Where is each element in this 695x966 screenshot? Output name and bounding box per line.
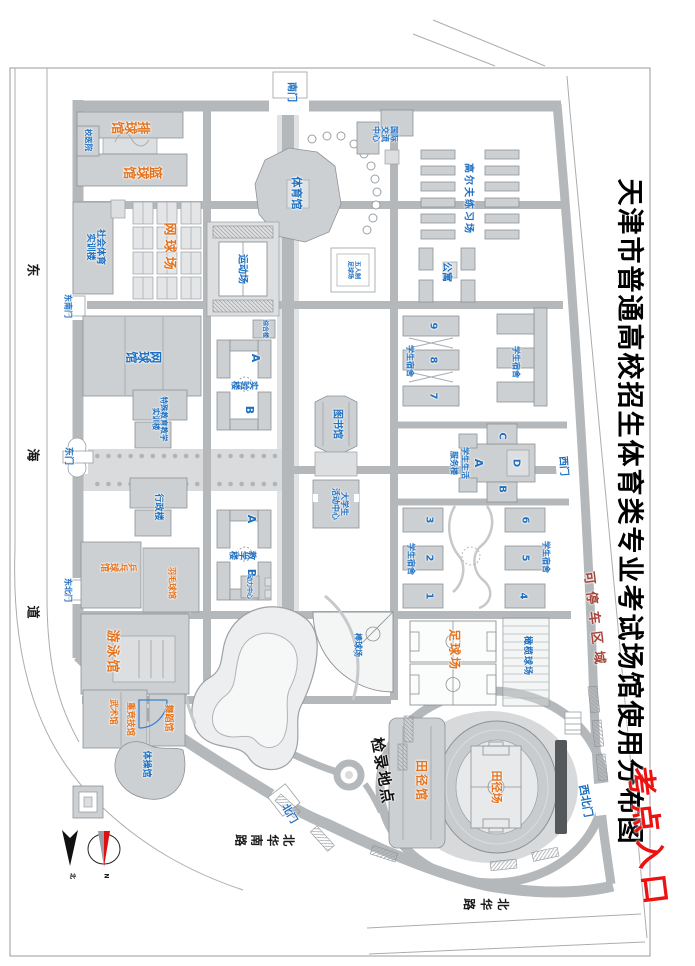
bld-complex: 综合楼: [261, 320, 268, 338]
dorm-7: 7: [427, 393, 438, 400]
dorm-3: 3: [423, 517, 434, 524]
gate-northwest: 西北门: [576, 784, 594, 819]
venue-swimming: 游泳馆: [104, 629, 119, 674]
dorm-1: 1: [423, 593, 434, 600]
bld-intl-exchange: 国际交流中心: [371, 126, 398, 142]
bld-lab-a: A: [249, 354, 261, 363]
bld-baseball: 棒球场: [353, 633, 362, 657]
bld-social-sports-training: 社会体育实训楼: [85, 229, 105, 265]
road-donghai-char-2: 海: [24, 448, 39, 461]
venue-athletics-hall: 田径馆: [414, 760, 427, 802]
dorm-nw-label: 学生宿舍: [511, 346, 520, 378]
venue-heavy-athletics: 重竞技馆: [124, 702, 134, 736]
campus-map-stage: 南门西门西北门北门东门东南门东北门排球馆篮球馆网球场乒乓球馆羽毛球馆游泳馆武术馆…: [0, 0, 695, 966]
bld-special-edu: 特殊教育教学实训楼: [151, 397, 168, 442]
svc-c: C: [496, 432, 507, 439]
dorm-789-label: 学生宿舍: [405, 345, 414, 377]
map-title: 天津市普通高校招生体育类专业考试场馆使用分布图: [613, 179, 652, 846]
svc-label-2: 服务楼: [449, 451, 458, 475]
compass-north-letter: 北: [68, 873, 75, 879]
venue-table-tennis: 乒乓球馆: [101, 561, 137, 571]
dorm-9: 9: [427, 323, 438, 330]
venue-dance: 舞蹈馆: [163, 704, 173, 731]
map-labels: 南门西门西北门北门东门东南门东北门排球馆篮球馆网球场乒乓球馆羽毛球馆游泳馆武术馆…: [0, 0, 695, 966]
bld-library: 图书馆: [331, 409, 342, 439]
venue-tennis-courts: 网球场: [161, 222, 176, 273]
dorm-4: 4: [517, 593, 528, 600]
bld-golf-range: 高尔夫练习场: [462, 163, 473, 235]
campus-map-viewport: 南门西门西北门北门东门东南门东北门排球馆篮球馆网球场乒乓球馆羽毛球馆游泳馆武术馆…: [0, 0, 695, 966]
bld-lab-b: B: [243, 406, 255, 414]
dorm-456-label: 学生宿舍: [541, 541, 550, 573]
venue-wushu: 武术馆: [107, 699, 117, 725]
bld-campus-hospital: 校医院: [84, 129, 92, 152]
dorm-6: 6: [519, 517, 530, 524]
gate-southeast: 东南门: [63, 294, 72, 318]
bld-teaching: 教学楼: [230, 549, 257, 559]
bld-sports-ground: 运动场: [236, 254, 247, 284]
bld-gymnastics: 体操馆: [141, 750, 151, 777]
venue-football: 足球场: [447, 629, 460, 671]
gate-west: 西门: [557, 456, 570, 477]
svc-label-1: 学生生活: [460, 447, 469, 479]
road-donghai-char-1: 东: [24, 263, 39, 276]
gate-east: 东门: [63, 447, 73, 465]
road-donghai-char-3: 道: [24, 605, 39, 618]
svc-a: A: [472, 459, 484, 468]
gate-south: 南门: [285, 82, 296, 102]
road-beihua-label: 北华路: [459, 896, 510, 909]
venue-athletics-field: 田径场: [490, 771, 502, 804]
dorm-5: 5: [519, 555, 530, 562]
road-beihua-south-label: 北华南路: [231, 832, 295, 845]
dorm-8: 8: [427, 357, 438, 364]
svc-b: B: [496, 485, 507, 493]
bld-futsal: 五人制足球场: [346, 261, 359, 279]
bld-teaching-a: A: [245, 515, 257, 524]
dorm-2: 2: [423, 555, 434, 562]
bld-gymnasium: 体育馆: [290, 177, 302, 210]
bld-rugby: 橄榄球场: [522, 636, 532, 676]
gate-north: 北门: [279, 803, 299, 826]
venue-volleyball: 排球馆: [112, 118, 151, 133]
bld-apartments: 公寓: [440, 262, 451, 282]
venue-badminton: 羽毛球馆: [167, 567, 176, 599]
bld-lab: 实验楼: [232, 379, 259, 389]
svc-d: D: [510, 459, 521, 467]
venue-basketball: 篮球馆: [124, 163, 163, 178]
gate-northeast: 东北门: [63, 578, 72, 602]
bld-student-activity: 大学生活动中心: [330, 488, 348, 520]
bld-utility: 动力中心: [245, 575, 252, 599]
dorm-123-label: 学生宿舍: [406, 543, 415, 575]
compass-n-letter: N: [102, 873, 109, 878]
bld-tennis-hall: 网球馆: [126, 349, 162, 362]
bld-admin: 行政楼: [153, 493, 163, 520]
